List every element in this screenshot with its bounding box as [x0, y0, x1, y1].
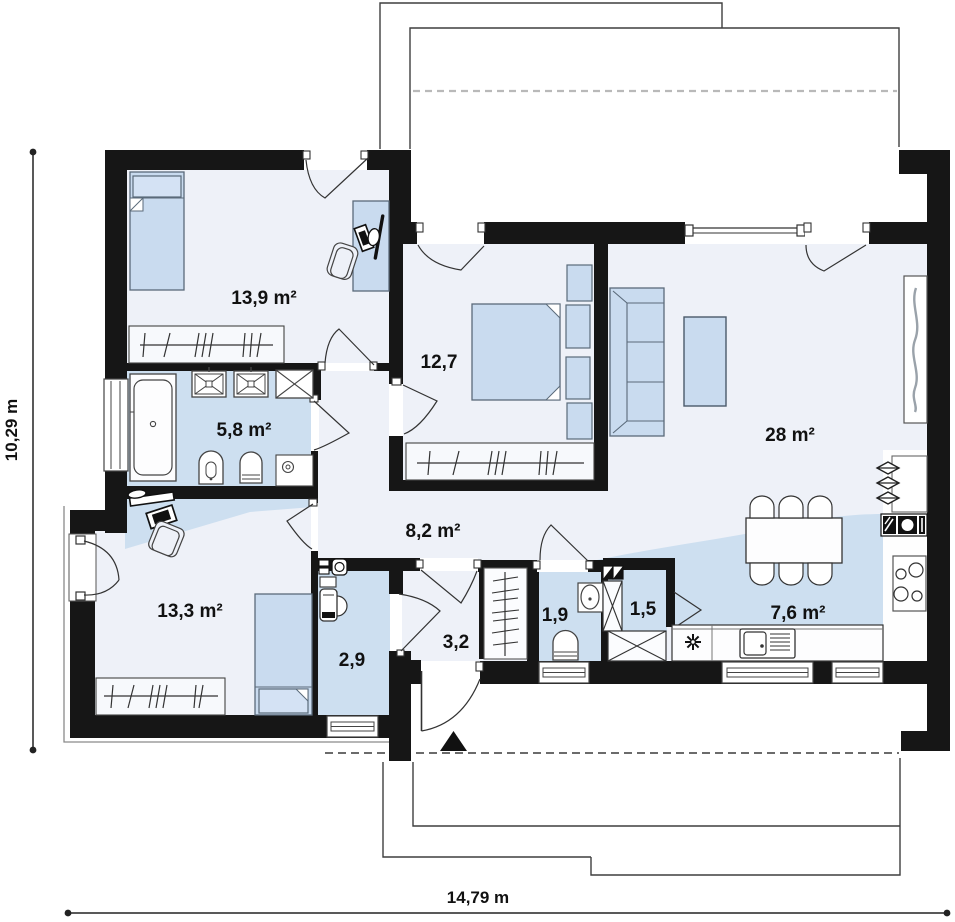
- svg-text:10,29 m: 10,29 m: [2, 399, 21, 461]
- svg-text:13,3 m²: 13,3 m²: [157, 601, 222, 622]
- svg-text:12,7: 12,7: [421, 352, 458, 373]
- svg-text:5,8 m²: 5,8 m²: [217, 420, 272, 441]
- svg-text:8,2 m²: 8,2 m²: [406, 521, 461, 542]
- svg-text:13,9 m²: 13,9 m²: [231, 288, 296, 309]
- svg-text:1,9: 1,9: [542, 605, 568, 626]
- svg-text:28 m²: 28 m²: [765, 425, 815, 446]
- svg-text:14,79 m: 14,79 m: [447, 888, 509, 907]
- svg-text:2,9: 2,9: [339, 650, 365, 671]
- svg-text:7,6 m²: 7,6 m²: [771, 603, 826, 624]
- svg-text:1,5: 1,5: [630, 599, 657, 620]
- svg-text:3,2: 3,2: [443, 632, 469, 653]
